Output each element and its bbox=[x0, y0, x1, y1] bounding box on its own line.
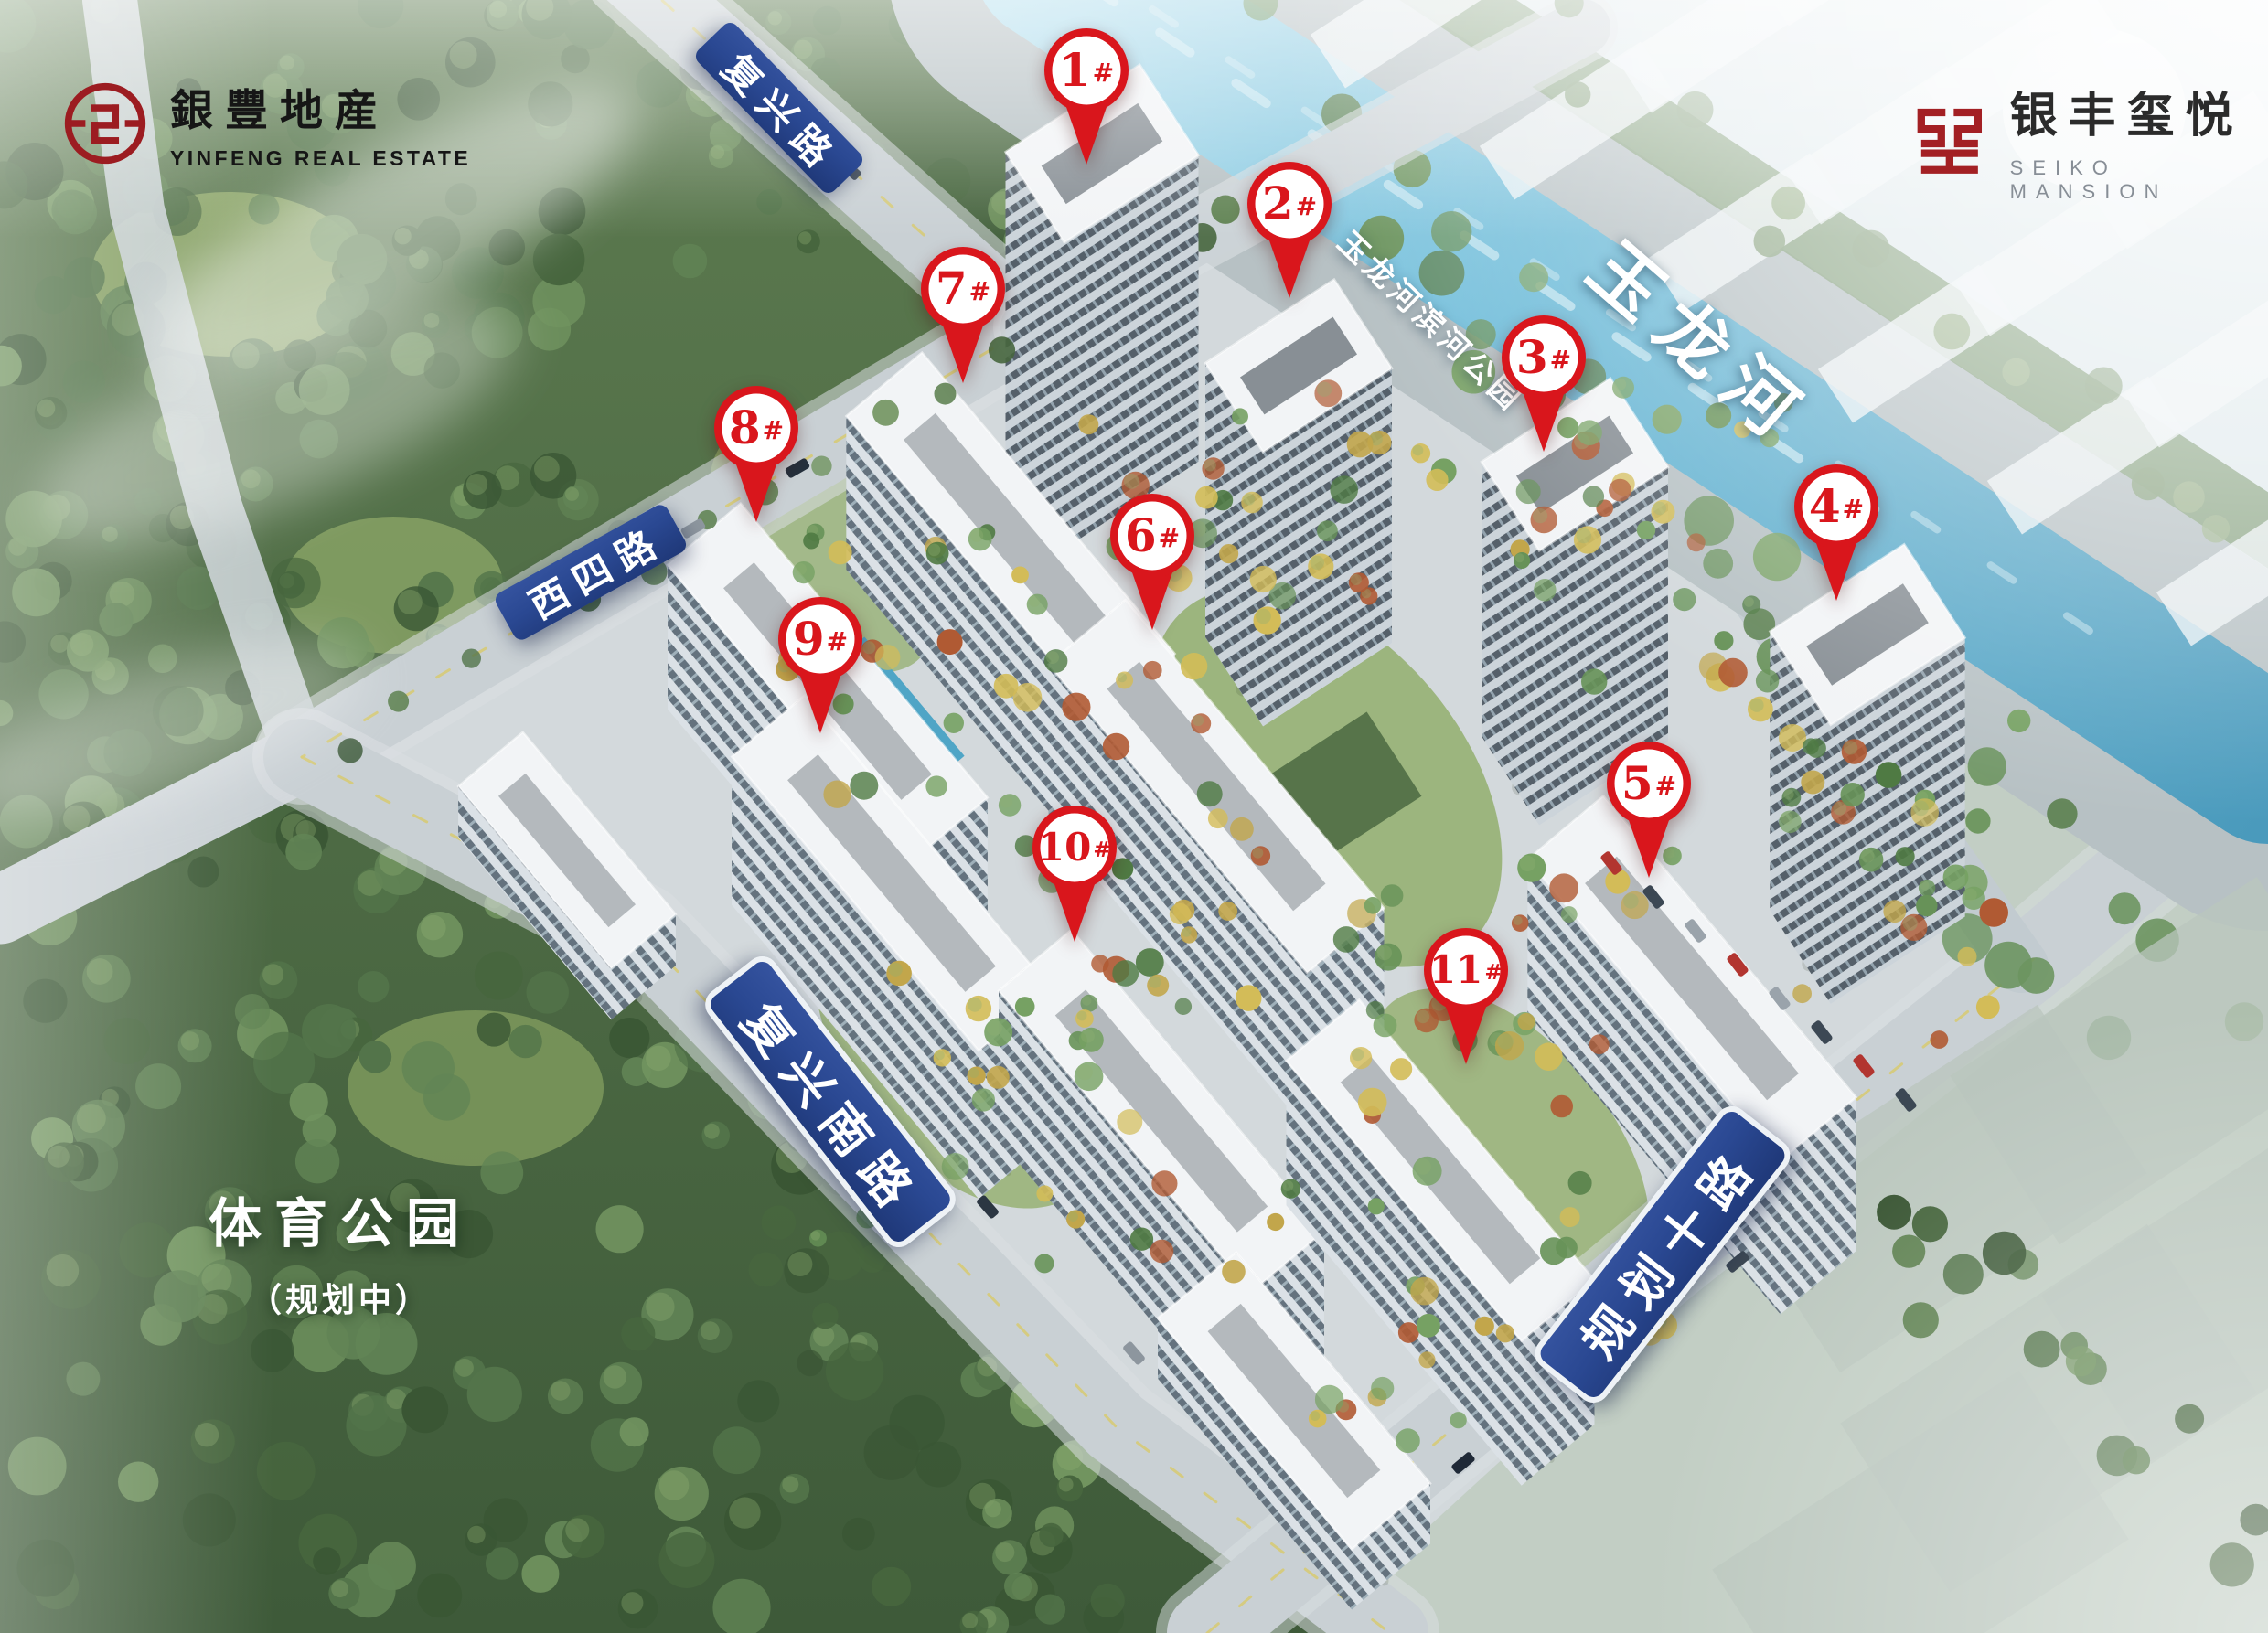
seiko-mansion-seal-icon bbox=[1915, 103, 1984, 178]
project-logo: 银丰玺悦 SEIKO MANSION bbox=[1915, 77, 2268, 204]
developer-name-en: YINFENG REAL ESTATE bbox=[170, 146, 471, 171]
project-name-cn: 银丰玺悦 bbox=[2010, 77, 2268, 145]
developer-logo: 銀豐地産 YINFENG REAL ESTATE bbox=[62, 75, 471, 171]
project-name-en: SEIKO MANSION bbox=[2010, 156, 2268, 204]
aerial-site-plan: 复兴路西四路复兴南路规划十路玉龙河玉龙河滨河公园体育公园（规划中）1#2#3#4… bbox=[0, 0, 2268, 1633]
site-plan-rendering bbox=[0, 0, 2268, 1633]
yinfeng-seal-icon bbox=[62, 80, 148, 166]
developer-name-cn: 銀豐地産 bbox=[170, 75, 471, 138]
